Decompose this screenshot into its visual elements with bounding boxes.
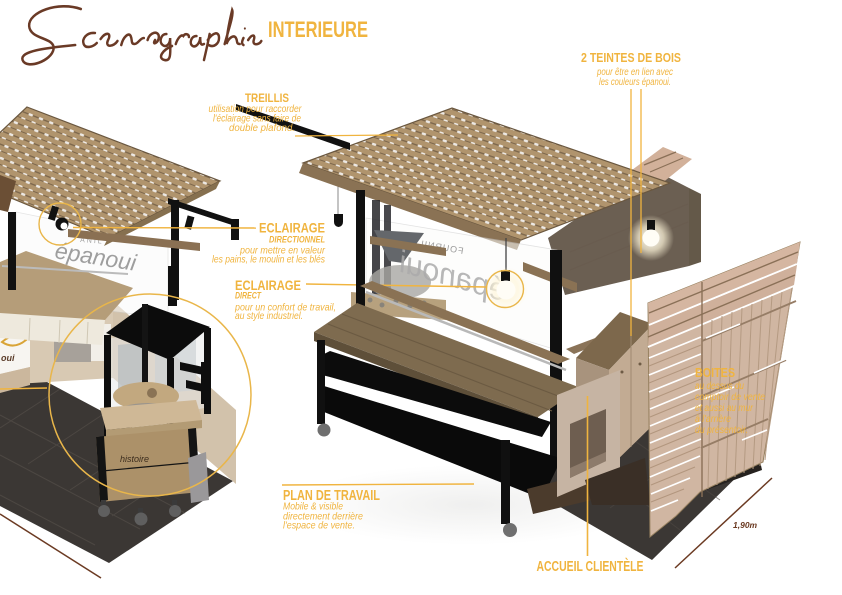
svg-text:au dessus du: au dessus du [695,381,744,392]
svg-text:TREILLIS: TREILLIS [245,91,289,105]
svg-text:au style industriel.: au style industriel. [235,310,303,322]
svg-text:les couleurs épanoui.: les couleurs épanoui. [599,77,671,88]
svg-text:double plafond.: double plafond. [229,123,295,134]
svg-text:histoire: histoire [120,454,149,464]
svg-text:et aussi au mur: et aussi au mur [695,403,754,414]
svg-text:DIRECTIONNEL: DIRECTIONNEL [269,235,325,245]
svg-text:oui: oui [1,353,15,363]
svg-text:les pains, le moulin et les bl: les pains, le moulin et les blés [212,254,326,266]
svg-text:ACCUEIL CLIENTÈLE: ACCUEIL CLIENTÈLE [537,558,644,575]
svg-text:BOITES: BOITES [695,365,735,380]
svg-text:l'espace de vente.: l'espace de vente. [283,520,355,532]
svg-text:du présentoir.: du présentoir. [695,425,748,436]
svg-text:INTERIEURE: INTERIEURE [268,17,368,42]
svg-text:DIRECT: DIRECT [235,291,262,301]
svg-text:à l'arrière: à l'arrière [695,414,731,425]
svg-text:comptoir de vente: comptoir de vente [695,392,765,403]
svg-text:1,90m: 1,90m [733,520,758,530]
svg-text:2 TEINTES DE BOIS: 2 TEINTES DE BOIS [581,50,681,65]
svg-text:ECLAIRAGE: ECLAIRAGE [259,221,325,236]
